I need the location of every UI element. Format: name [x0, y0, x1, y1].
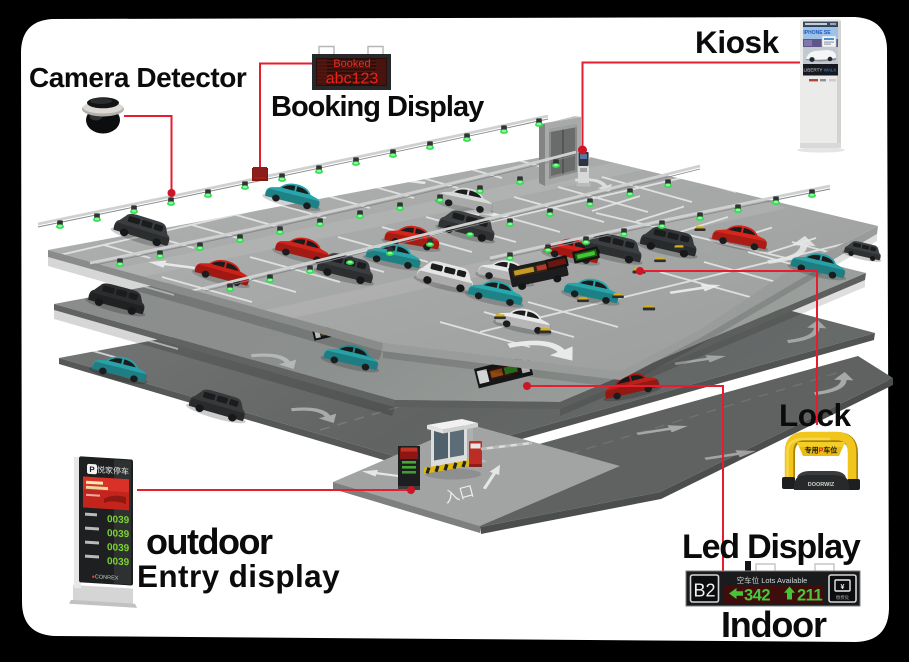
- svg-text:¥: ¥: [841, 584, 845, 591]
- svg-text:缴费处: 缴费处: [836, 594, 850, 601]
- svg-text:abc123: abc123: [326, 71, 379, 88]
- svg-text:Camera Detector: Camera Detector: [29, 62, 247, 93]
- svg-text:IPHONE SE: IPHONE SE: [803, 30, 831, 36]
- svg-text:342: 342: [744, 587, 770, 605]
- svg-text:Booking Display: Booking Display: [271, 91, 484, 123]
- svg-text:LIBERTY WALK: LIBERTY WALK: [803, 68, 837, 73]
- svg-text:DOORWIZ: DOORWIZ: [808, 482, 835, 488]
- svg-text:Indoor: Indoor: [721, 604, 827, 645]
- svg-text:outdoor: outdoor: [146, 521, 273, 562]
- svg-text:空车位 Lots Available: 空车位 Lots Available: [737, 575, 808, 585]
- svg-text:Lock: Lock: [779, 397, 852, 433]
- svg-text:Entry display: Entry display: [137, 558, 340, 594]
- svg-text:211: 211: [797, 587, 822, 605]
- svg-text:专用P车位: 专用P车位: [805, 446, 838, 455]
- svg-text:Booked: Booked: [333, 58, 370, 70]
- svg-text:Led Display: Led Display: [682, 528, 861, 566]
- svg-text:Kiosk: Kiosk: [695, 24, 780, 60]
- svg-text:0039: 0039: [107, 556, 130, 568]
- svg-text:0039: 0039: [107, 514, 130, 526]
- svg-text:P: P: [89, 465, 95, 474]
- svg-text:0039: 0039: [107, 528, 130, 540]
- svg-text:悦家停车: 悦家停车: [97, 464, 129, 476]
- svg-text:0039: 0039: [107, 542, 130, 554]
- svg-text:B2: B2: [693, 581, 715, 601]
